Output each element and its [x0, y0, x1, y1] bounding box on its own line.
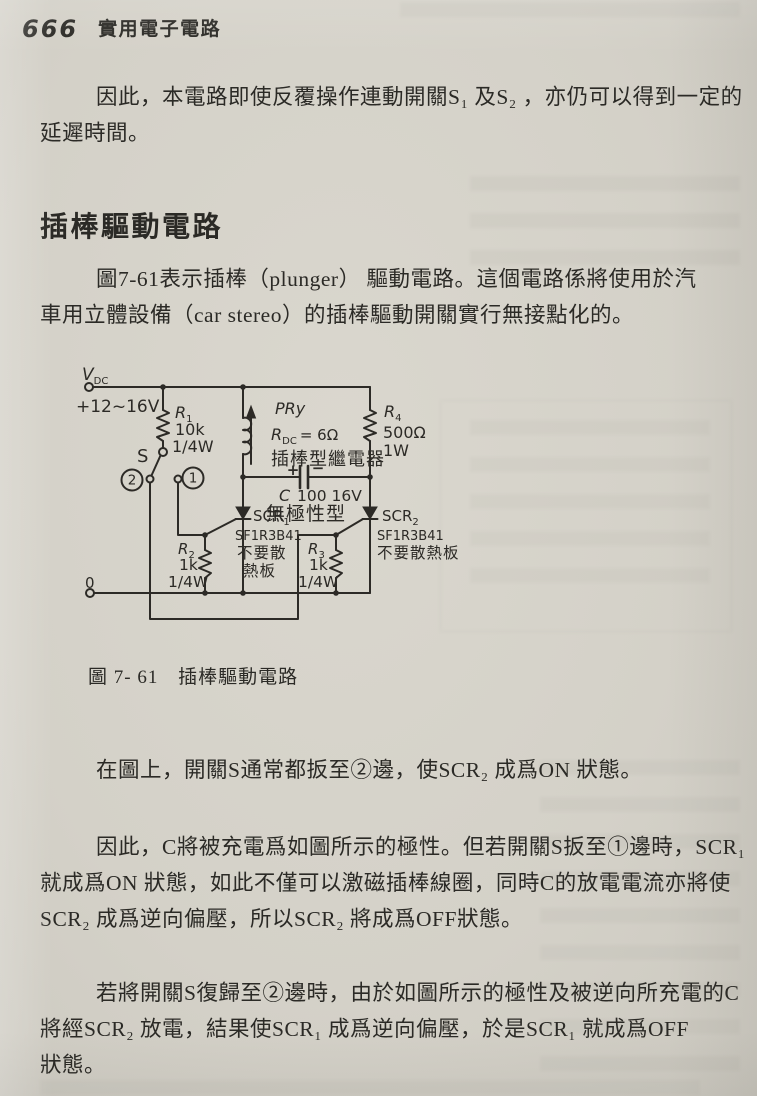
- switch-label: S: [137, 446, 148, 467]
- plunger-arrow-head: [247, 406, 256, 418]
- r2-power: 1/4W: [168, 573, 208, 591]
- text-line: SCR₂ 成爲逆向偏壓，所以SCR₂ 將成爲OFF狀態。: [40, 901, 738, 937]
- text-line: 若將開關S復歸至②邊時，由於如圖所示的極性及被逆向所充電的C: [40, 975, 738, 1011]
- ground-label: 0: [85, 574, 95, 592]
- vdc-value: +12~16V: [76, 397, 160, 417]
- text-line: 因此，C將被充電爲如圖所示的極性。但若開關S扳至①邊時，SCR₁: [40, 829, 738, 865]
- r2-value: 1k: [179, 556, 198, 574]
- text-line: 延遲時間。: [40, 115, 738, 151]
- vdc-label: VDC: [82, 365, 108, 387]
- text-line: 因此，本電路即使反覆操作連動開關S₁ 及S₂ ，亦仍可以得到一定的: [40, 79, 738, 115]
- section-heading: 插棒驅動電路: [40, 205, 223, 245]
- scr2-part-number: SF1R3B41: [377, 529, 444, 544]
- r1-power: 1/4W: [172, 437, 214, 456]
- text-line: 狀態。: [40, 1047, 738, 1083]
- bleed-through-ghost: [440, 400, 732, 632]
- paragraph-1: 因此，本電路即使反覆操作連動開關S₁ 及S₂ ，亦仍可以得到一定的 延遲時間。: [40, 79, 738, 151]
- scr1-gate-wire: [205, 519, 236, 535]
- r4-label: R4: [384, 402, 402, 424]
- switch-contact-2: [147, 476, 154, 483]
- book-title: 實用電子電路: [98, 14, 221, 41]
- text-line: 車用立體設備（car stereo）的插棒驅動開關實行無接點化的。: [40, 297, 738, 333]
- r3-value: 1k: [309, 556, 328, 574]
- relay-coil: [243, 387, 256, 507]
- bleed-through-ghost: [400, 2, 740, 36]
- paragraph-4: 因此，C將被充電爲如圖所示的極性。但若開關S扳至①邊時，SCR₁ 就成爲ON 狀…: [40, 829, 738, 937]
- scr1-note-line2: 熱板: [243, 562, 276, 580]
- circuit-diagram: VDC +12~16V R1 10k 1/4W S 2 1 PRy RDC= 6…: [60, 360, 470, 652]
- figure-caption-label: 圖 7- 61: [88, 667, 158, 688]
- r3-power: 1/4W: [298, 573, 338, 591]
- cap-plus-sign: +: [287, 461, 300, 479]
- text-line: 在圖上，開關S通常都扳至②邊，使SCR₂ 成爲ON 狀態。: [40, 752, 738, 788]
- wire-contact1-to-scr1-gate: [178, 483, 205, 536]
- page-number: 666: [22, 15, 78, 43]
- switch-blade: [152, 456, 161, 476]
- r4-value: 500Ω: [383, 423, 426, 442]
- book-page: 666 實用電子電路 因此，本電路即使反覆操作連動開關S₁ 及S₂ ，亦仍可以得…: [0, 0, 757, 1096]
- scr1-part-number: SF1R3B41: [235, 529, 302, 544]
- text-line: 將經SCR₂ 放電，結果使SCR₁ 成爲逆向偏壓，於是SCR₁ 就成爲OFF: [40, 1011, 738, 1047]
- switch-contact-1: [175, 476, 182, 483]
- figure-caption: 圖 7- 61 插棒驅動電路: [88, 662, 298, 689]
- bleed-through-ghost: [470, 420, 710, 600]
- text-line: 圖7-61表示插棒（plunger） 驅動電路。這個電路係將使用於汽: [40, 261, 738, 297]
- paragraph-2: 圖7-61表示插棒（plunger） 驅動電路。這個電路係將使用於汽 車用立體設…: [40, 261, 738, 333]
- figure-caption-title: 插棒驅動電路: [178, 667, 298, 688]
- paragraph-3: 在圖上，開關S通常都扳至②邊，使SCR₂ 成爲ON 狀態。: [40, 752, 738, 788]
- relay-rdc: RDC= 6Ω: [271, 425, 338, 447]
- running-head: 666 實用電子電路: [22, 14, 221, 43]
- scr1-note-line1: 不要散: [237, 544, 287, 562]
- position-1-digit: 1: [189, 471, 198, 487]
- text-line: 就成爲ON 狀態，如此不僅可以激磁插棒線圈，同時C的放電電流亦將使: [40, 865, 738, 901]
- position-2-digit: 2: [128, 473, 137, 489]
- scr2-label: SCR2: [382, 507, 419, 528]
- paragraph-5: 若將開關S復歸至②邊時，由於如圖所示的極性及被逆向所充電的C 將經SCR₂ 放電…: [40, 975, 738, 1083]
- r4-power: 1W: [383, 441, 409, 460]
- scr2-note: 不要散熱板: [377, 544, 460, 562]
- cap-minus-sign: −: [312, 459, 325, 477]
- relay-name: PRy: [275, 399, 306, 418]
